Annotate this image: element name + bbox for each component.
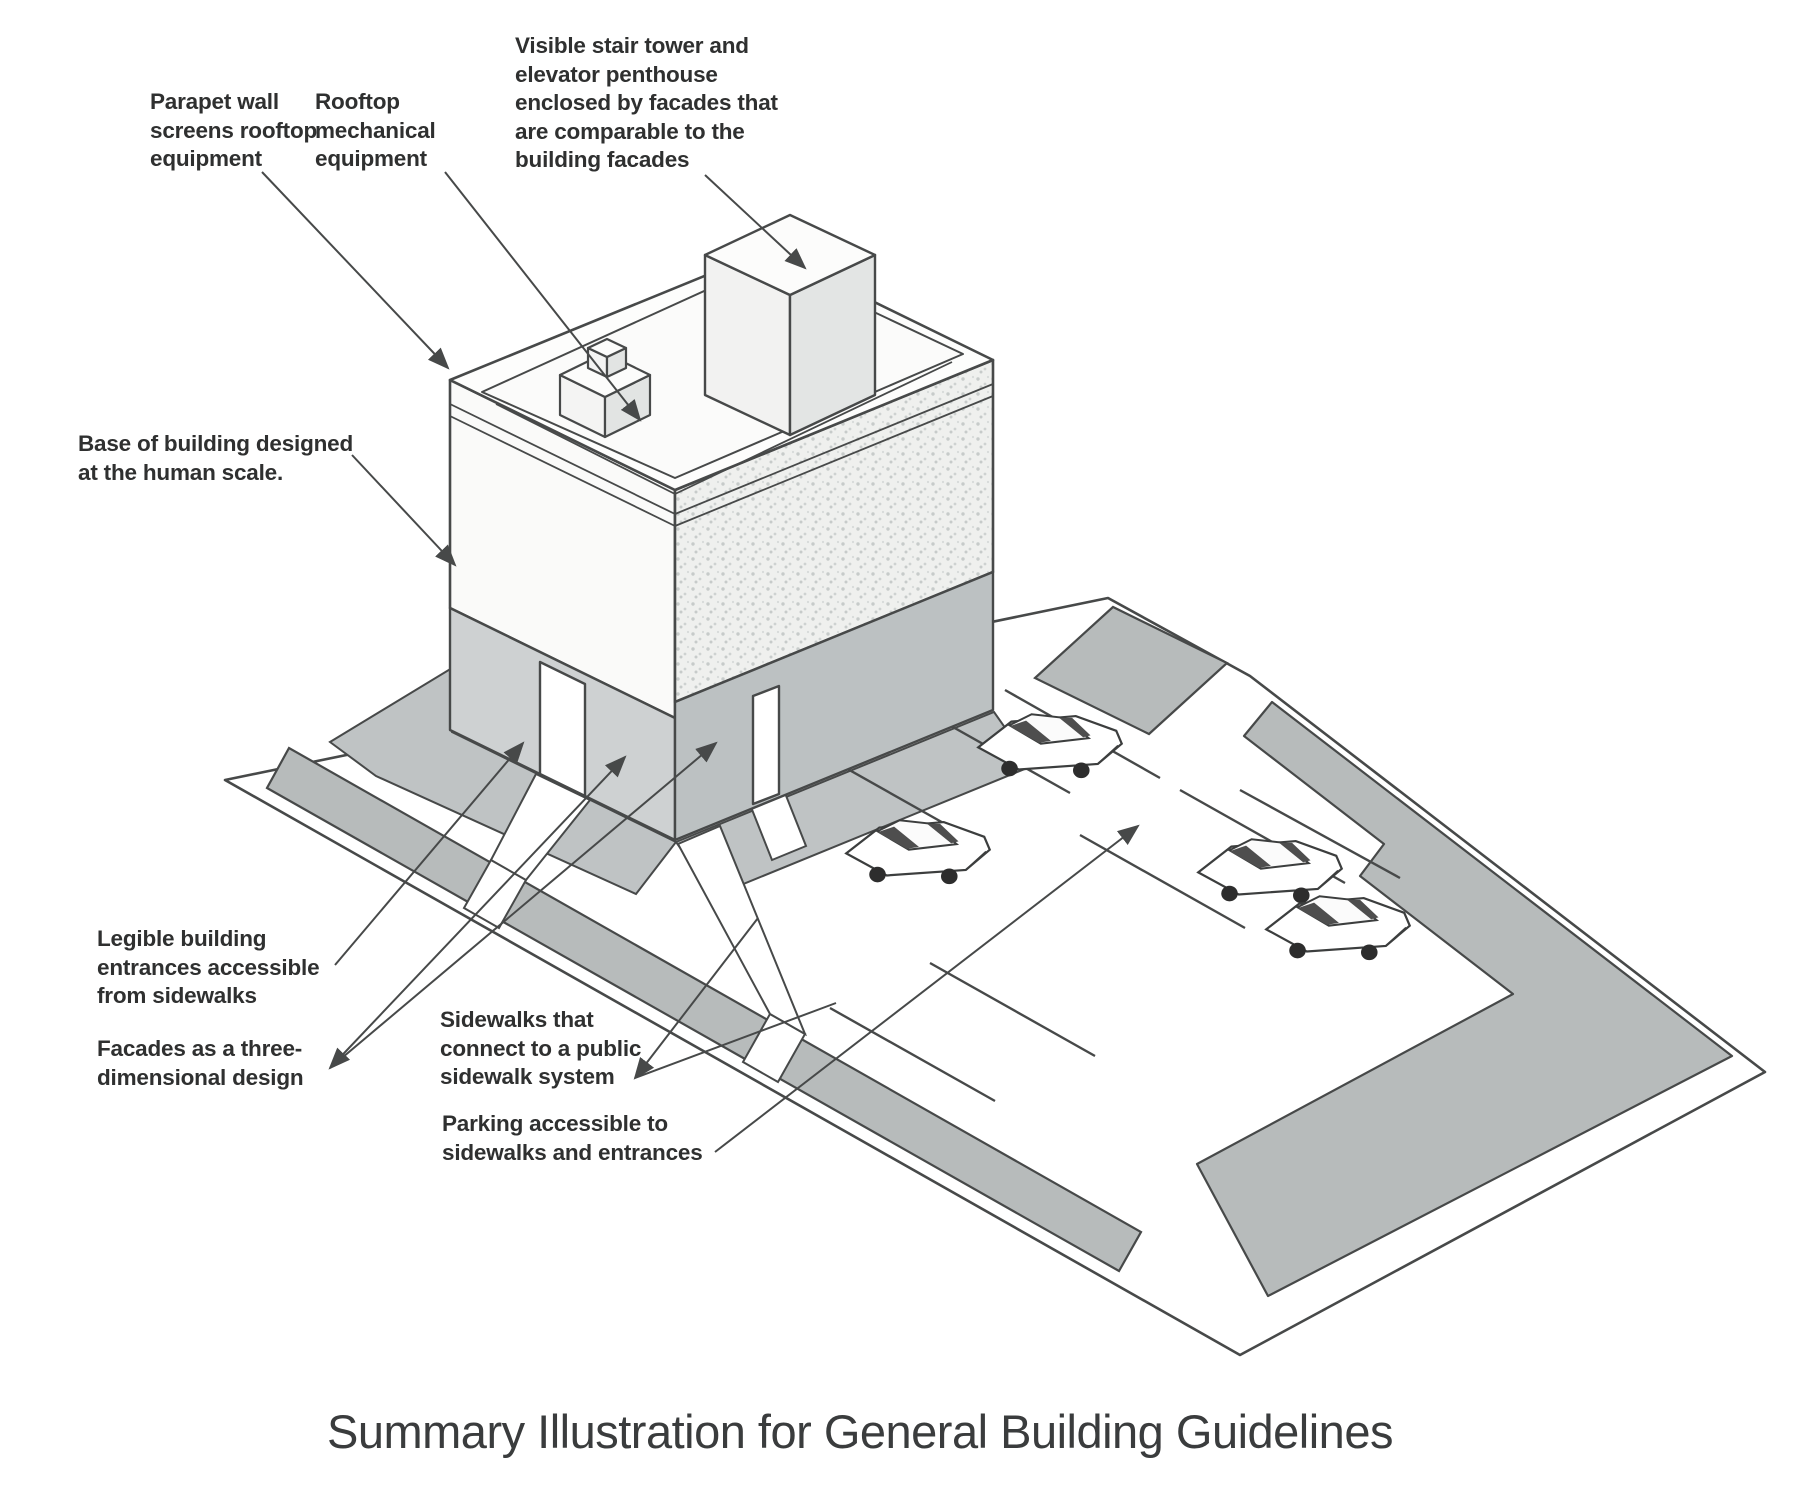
label-sidewalks-connect: Sidewalks that connect to a public sidew… xyxy=(440,1006,641,1092)
leader-parapet xyxy=(262,172,448,368)
entrance-door-left xyxy=(540,662,585,796)
entrance-door-right xyxy=(753,686,779,804)
label-facades-3d: Facades as a three- dimensional design xyxy=(97,1035,303,1092)
label-rooftop-mechanical: Rooftop mechanical equipment xyxy=(315,88,436,174)
label-legible-entrances: Legible building entrances accessible fr… xyxy=(97,925,319,1011)
label-base-human-scale: Base of building designed at the human s… xyxy=(78,430,353,487)
label-parking-accessible: Parking accessible to sidewalks and entr… xyxy=(442,1110,703,1167)
label-parapet-wall: Parapet wall screens rooftop equipment xyxy=(150,88,317,174)
leader-base xyxy=(352,455,455,565)
site-illustration xyxy=(0,0,1794,1500)
label-stair-tower: Visible stair tower and elevator penthou… xyxy=(515,32,778,175)
stair-tower-penthouse xyxy=(705,215,875,435)
figure-title: Summary Illustration for General Buildin… xyxy=(110,1404,1610,1459)
building-guidelines-diagram: Parapet wall screens rooftop equipment R… xyxy=(0,0,1794,1500)
